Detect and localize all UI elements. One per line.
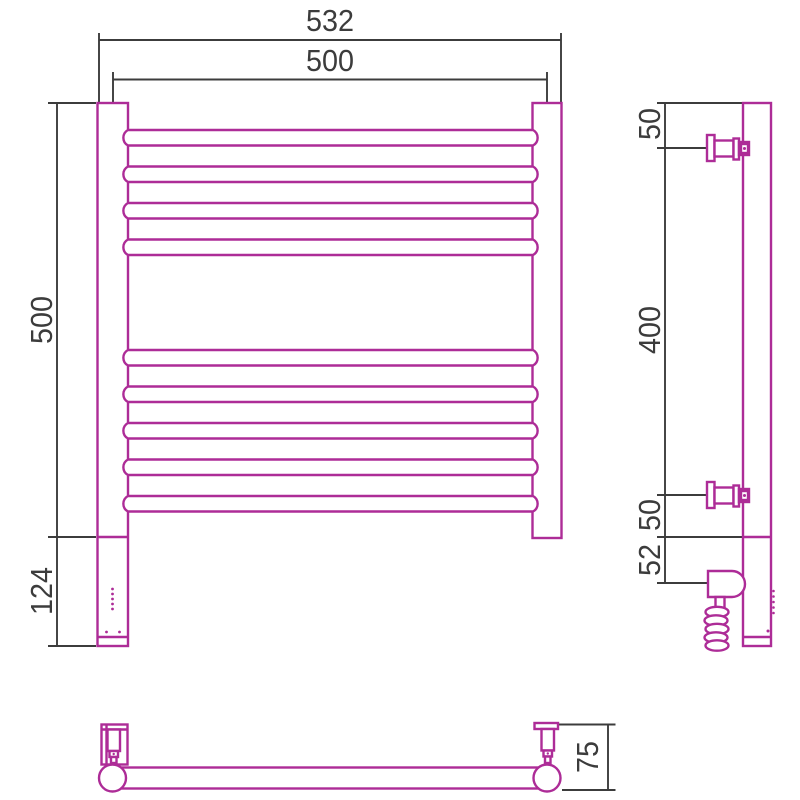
plan-right-post-circle bbox=[534, 765, 561, 792]
towel-rail-drawing: 532 500 500 124 bbox=[0, 0, 800, 800]
drawing-canvas: 532 500 500 124 bbox=[0, 0, 800, 800]
plan-left-post-circle bbox=[99, 765, 126, 792]
front-view: 532 500 500 124 bbox=[24, 3, 562, 646]
dim-label-top-to-bracket: 50 bbox=[632, 108, 667, 140]
dimension-wall-offset: 75 bbox=[558, 725, 616, 791]
dim-label-rail-length: 500 bbox=[306, 43, 354, 78]
rail bbox=[123, 387, 537, 403]
dim-label-height: 500 bbox=[24, 296, 59, 344]
side-tube bbox=[743, 103, 771, 646]
side-dimension-chain: 50 400 50 52 bbox=[632, 103, 742, 583]
dim-label-bracket-to-bottom: 50 bbox=[632, 499, 667, 531]
rail bbox=[123, 460, 537, 476]
coiled-cable-icon bbox=[705, 607, 729, 651]
left-post bbox=[98, 103, 129, 646]
plan-rail-tube bbox=[113, 768, 547, 789]
rail bbox=[123, 130, 537, 146]
side-view: 50 400 50 52 bbox=[632, 103, 775, 651]
plan-left-bracket bbox=[102, 725, 128, 765]
dimension-heater-section: 124 bbox=[24, 537, 96, 646]
dim-label-overall-width: 532 bbox=[306, 3, 354, 38]
rail bbox=[123, 423, 537, 439]
rail bbox=[123, 496, 537, 512]
dim-label-heater-section: 124 bbox=[24, 567, 59, 615]
dim-label-bottom-to-heater: 52 bbox=[632, 544, 667, 576]
rail bbox=[123, 240, 537, 256]
rail bbox=[123, 350, 537, 366]
dimension-rail-length: 500 bbox=[113, 43, 547, 102]
plan-view: 75 bbox=[99, 723, 616, 792]
rail bbox=[123, 167, 537, 183]
plan-right-bracket bbox=[535, 723, 559, 763]
dim-label-bracket-to-bracket: 400 bbox=[632, 306, 667, 354]
dimension-height: 500 bbox=[24, 103, 96, 537]
rails bbox=[123, 130, 537, 512]
rail bbox=[123, 203, 537, 219]
dim-label-wall-offset: 75 bbox=[570, 741, 605, 773]
